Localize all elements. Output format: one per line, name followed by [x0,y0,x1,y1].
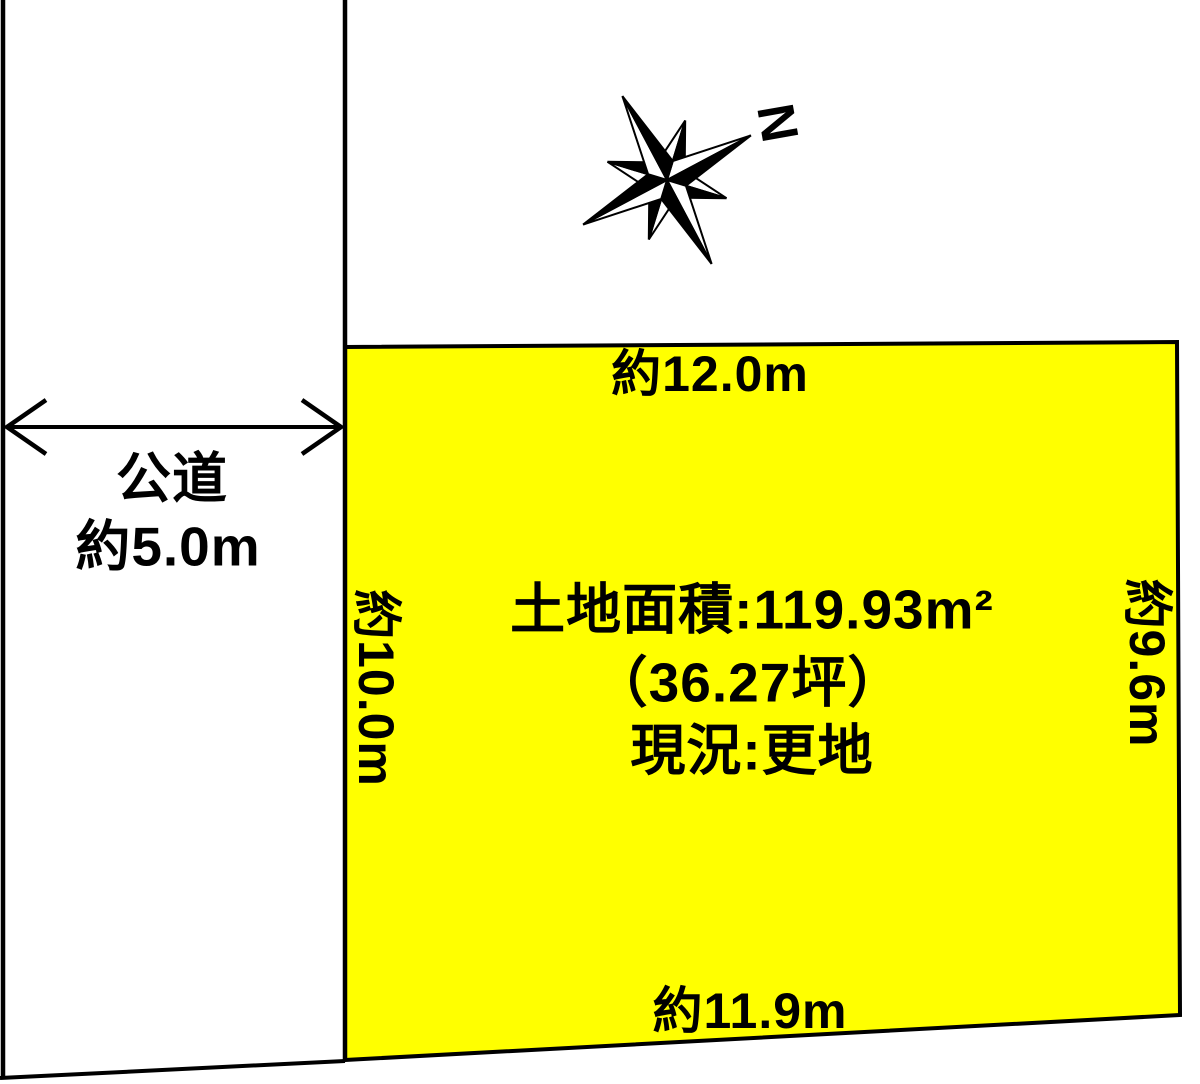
plot-right-length-label: 約9.6m [1122,579,1172,748]
road-name-label: 公道 [116,452,228,507]
plot-top-length-label: 約12.0m [611,349,809,399]
compass-rose-icon [539,52,796,309]
plot-status-label: 現況:更地 [630,724,873,779]
road-width-arrow [6,400,342,454]
plot-left-length-label: 約10.0m [351,589,401,787]
road-width-label: 約5.0m [75,520,260,575]
plot-area-label: 土地面積:119.93m² [510,583,994,638]
plot-bottom-length-label: 約11.9m [652,986,847,1036]
site-plan-diagram: N 公道 約5.0m 約12.0m 約10.0m 約9.6m 約11.9m 土地… [0,0,1200,1084]
plot-tsubo-label: （36.27坪） [593,656,904,711]
compass-north-label: N [745,99,809,146]
compass-cardinal-points [539,52,796,309]
road-bottom-boundary-line [0,1061,345,1078]
